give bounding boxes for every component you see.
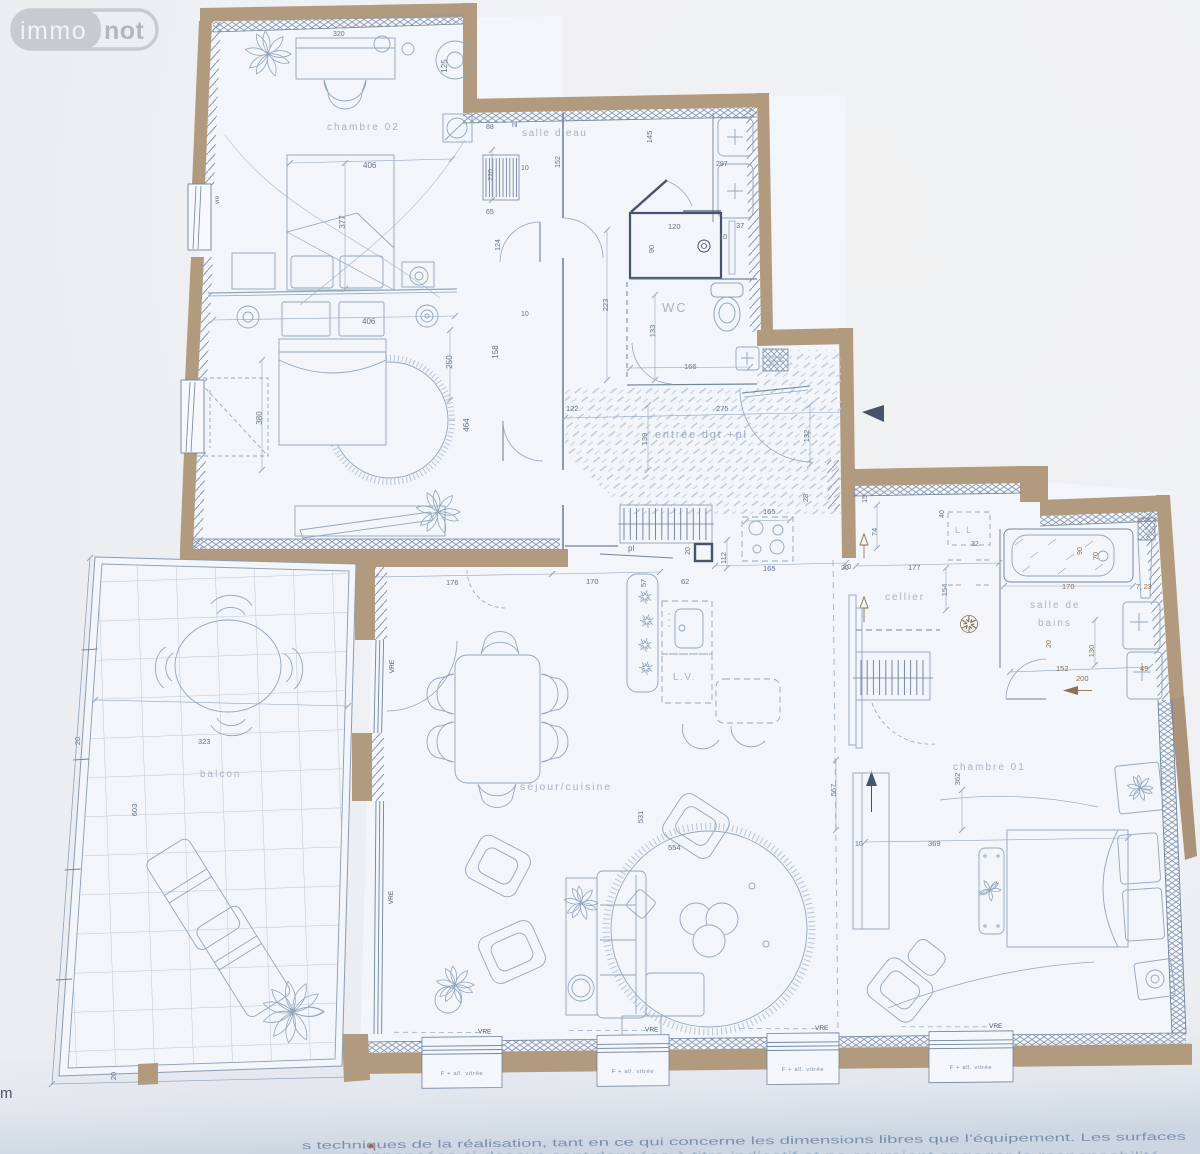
svg-text:124: 124 bbox=[495, 239, 502, 251]
svg-text:chambre 01: chambre 01 bbox=[953, 762, 1026, 773]
svg-text:275: 275 bbox=[716, 404, 729, 413]
svg-text:not: not bbox=[104, 17, 145, 45]
svg-text:séjour/cuisine: séjour/cuisine bbox=[520, 781, 612, 793]
svg-text:362: 362 bbox=[953, 773, 962, 786]
svg-text:120: 120 bbox=[668, 222, 681, 231]
svg-text:VRE: VRE bbox=[478, 1029, 492, 1036]
svg-text:90: 90 bbox=[1077, 547, 1084, 555]
svg-text:65: 65 bbox=[486, 209, 494, 216]
svg-text:603: 603 bbox=[130, 804, 139, 817]
svg-text:40: 40 bbox=[939, 510, 946, 518]
svg-text:220: 220 bbox=[488, 169, 495, 181]
svg-text:pl: pl bbox=[628, 544, 634, 553]
svg-text:7, 23: 7, 23 bbox=[1136, 584, 1152, 591]
svg-text:10: 10 bbox=[855, 841, 863, 848]
svg-text:554: 554 bbox=[668, 843, 681, 852]
svg-text:L L: L L bbox=[955, 525, 973, 535]
svg-text:VRE: VRE bbox=[389, 659, 396, 673]
svg-text:F + all. vitrée: F + all. vitrée bbox=[782, 1067, 824, 1073]
svg-text:297: 297 bbox=[716, 161, 728, 168]
svg-text:88: 88 bbox=[486, 124, 494, 131]
svg-text:200: 200 bbox=[1076, 674, 1089, 683]
svg-text:20: 20 bbox=[109, 1072, 118, 1080]
svg-text:10: 10 bbox=[521, 165, 529, 172]
svg-text:57: 57 bbox=[639, 579, 648, 587]
svg-text:20: 20 bbox=[1046, 640, 1053, 648]
svg-text:70: 70 bbox=[1091, 552, 1100, 560]
svg-text:49: 49 bbox=[1140, 664, 1148, 673]
svg-text:406: 406 bbox=[362, 317, 376, 326]
svg-text:152: 152 bbox=[1056, 664, 1069, 673]
svg-text:130: 130 bbox=[1087, 645, 1096, 658]
svg-text:122: 122 bbox=[566, 404, 579, 413]
svg-text:balcon: balcon bbox=[200, 769, 241, 780]
svg-text:vre: vre bbox=[215, 195, 221, 204]
svg-text:28: 28 bbox=[801, 494, 810, 502]
svg-text:VRE: VRE bbox=[388, 890, 395, 904]
svg-text:10: 10 bbox=[719, 232, 727, 241]
svg-text:F + all. vitrée: F + all. vitrée bbox=[612, 1069, 654, 1075]
svg-text:165: 165 bbox=[763, 507, 776, 516]
svg-text:464: 464 bbox=[462, 418, 471, 432]
svg-text:170: 170 bbox=[586, 577, 599, 586]
svg-text:chambre 02: chambre 02 bbox=[327, 122, 400, 133]
svg-text:10: 10 bbox=[521, 311, 529, 318]
svg-text:annoncées ci-dessus sont donné: annoncées ci-dessus sont données à titre… bbox=[360, 1150, 1160, 1154]
svg-text:112: 112 bbox=[719, 552, 728, 564]
svg-text:531: 531 bbox=[636, 811, 645, 824]
svg-text:20: 20 bbox=[685, 547, 692, 555]
svg-text:entrée dgt +pl: entrée dgt +pl bbox=[655, 429, 748, 441]
svg-text:F + all. vitrée: F + all. vitrée bbox=[441, 1071, 483, 1077]
svg-text:154: 154 bbox=[940, 584, 949, 597]
svg-text:salle d’eau: salle d’eau bbox=[522, 128, 587, 139]
svg-text:145: 145 bbox=[645, 131, 654, 144]
svg-text:158: 158 bbox=[491, 345, 500, 359]
svg-text:567: 567 bbox=[829, 784, 838, 797]
svg-text:125: 125 bbox=[440, 59, 449, 73]
svg-text:133: 133 bbox=[648, 325, 657, 338]
svg-text:152: 152 bbox=[555, 156, 562, 168]
svg-text:VRE: VRE bbox=[989, 1023, 1003, 1030]
svg-text:immo: immo bbox=[20, 17, 87, 45]
svg-text:F + all. vitrée: F + all. vitrée bbox=[950, 1065, 992, 1071]
svg-text:L.V.: L.V. bbox=[673, 672, 696, 683]
svg-text:165: 165 bbox=[763, 564, 776, 573]
svg-text:320: 320 bbox=[333, 31, 345, 38]
svg-text:176: 176 bbox=[446, 578, 459, 587]
svg-text:32: 32 bbox=[971, 541, 979, 548]
svg-text:166: 166 bbox=[684, 362, 697, 371]
svg-text:cellier: cellier bbox=[885, 592, 925, 603]
svg-text:250: 250 bbox=[445, 355, 454, 369]
svg-text:62: 62 bbox=[681, 577, 689, 586]
svg-text:369: 369 bbox=[928, 839, 941, 848]
svg-text:20: 20 bbox=[73, 737, 82, 745]
svg-text:223: 223 bbox=[601, 299, 610, 312]
svg-text:WC: WC bbox=[662, 300, 688, 315]
svg-text:377: 377 bbox=[338, 215, 347, 229]
svg-text:177: 177 bbox=[908, 563, 921, 572]
svg-text:m: m bbox=[0, 1085, 13, 1102]
svg-text:170: 170 bbox=[1062, 582, 1075, 591]
svg-text:132: 132 bbox=[802, 430, 811, 443]
svg-text:bains: bains bbox=[1038, 618, 1072, 629]
svg-text:nl: nl bbox=[512, 122, 518, 129]
svg-text:74: 74 bbox=[870, 528, 879, 536]
svg-text:VRE: VRE bbox=[815, 1025, 829, 1032]
svg-text:139: 139 bbox=[640, 433, 649, 446]
svg-text:323: 323 bbox=[198, 737, 211, 746]
svg-text:15: 15 bbox=[862, 495, 869, 503]
svg-text:37: 37 bbox=[736, 221, 744, 230]
svg-text:salle de: salle de bbox=[1030, 600, 1080, 611]
svg-text:406: 406 bbox=[363, 161, 377, 170]
svg-text:20: 20 bbox=[841, 565, 849, 572]
svg-text:VRE: VRE bbox=[645, 1027, 659, 1034]
svg-text:380: 380 bbox=[255, 411, 264, 425]
svg-text:90: 90 bbox=[647, 245, 656, 253]
